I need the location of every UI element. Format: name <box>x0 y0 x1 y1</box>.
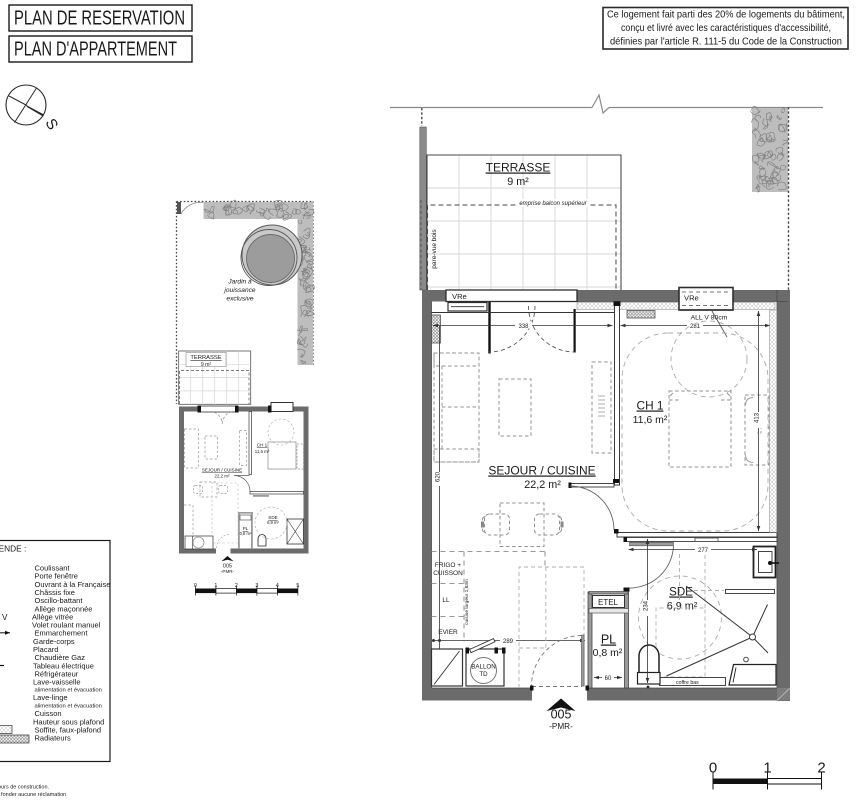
svg-text:FRIGO +: FRIGO + <box>435 562 461 569</box>
svg-text:TERRASSE: TERRASSE <box>486 161 551 175</box>
svg-text:PL: PL <box>601 633 616 647</box>
svg-text:-PMR-: -PMR- <box>221 569 235 574</box>
svg-text:jouissance: jouissance <box>223 287 255 294</box>
svg-text:SEJOUR / CUISINE: SEJOUR / CUISINE <box>488 464 595 478</box>
svg-text:VRe: VRe <box>452 292 467 301</box>
svg-text:281: 281 <box>690 324 701 330</box>
svg-text:CH 1: CH 1 <box>637 399 664 413</box>
svg-text:t fonder aucune réclamation: t fonder aucune réclamation <box>0 792 66 798</box>
svg-text:cuisine largeur 1,83m: cuisine largeur 1,83m <box>464 579 470 625</box>
svg-text:définies par l'article R. 111-: définies par l'article R. 111-5 du Code … <box>610 37 842 48</box>
svg-text:SEJOUR / CUISINE: SEJOUR / CUISINE <box>202 468 242 473</box>
svg-text:emprise balcon supérieur: emprise balcon supérieur <box>519 201 587 207</box>
svg-text:Ce logement fait parti des 20%: Ce logement fait parti des 20% de logeme… <box>607 10 845 21</box>
svg-text:6,9 m²: 6,9 m² <box>667 601 698 613</box>
svg-text:Jardin à: Jardin à <box>227 279 252 286</box>
svg-text:LL: LL <box>442 597 450 604</box>
svg-text:Radiateurs: Radiateurs <box>35 734 72 743</box>
svg-text:EVIER: EVIER <box>438 629 458 636</box>
svg-text:pare-vue bois: pare-vue bois <box>431 229 438 269</box>
svg-text:TD: TD <box>479 671 488 678</box>
svg-text:conçu et livré avec les caract: conçu et livré avec les caractéristiques… <box>621 23 831 34</box>
svg-text:11,6 m²: 11,6 m² <box>633 414 668 426</box>
svg-text:S: S <box>41 116 61 133</box>
svg-text:22,2 m²: 22,2 m² <box>524 479 561 491</box>
svg-text:413: 413 <box>755 412 761 423</box>
svg-text:0,8 m²: 0,8 m² <box>240 531 252 536</box>
svg-text:60: 60 <box>605 676 612 682</box>
svg-text:VRe: VRe <box>684 294 699 303</box>
svg-text:ETEL: ETEL <box>598 598 619 607</box>
svg-text:005: 005 <box>551 708 572 722</box>
svg-text:6,9 m²: 6,9 m² <box>267 520 279 525</box>
svg-text:Lave-linge: Lave-linge <box>33 693 68 702</box>
svg-text:PLAN DE RESERVATION: PLAN DE RESERVATION <box>14 8 185 30</box>
svg-text:PLAN D'APPARTEMENT: PLAN D'APPARTEMENT <box>14 39 177 61</box>
svg-text:Lave-vaisselle: Lave-vaisselle <box>33 678 81 687</box>
svg-text:ours de construction.: ours de construction. <box>0 785 50 791</box>
svg-text:277: 277 <box>698 548 709 554</box>
svg-text:-PMR-: -PMR- <box>549 722 573 731</box>
svg-text:exclusive: exclusive <box>226 296 253 303</box>
svg-text:620: 620 <box>436 471 442 482</box>
svg-text:BALLON: BALLON <box>471 664 495 671</box>
svg-text:TERRASSE: TERRASSE <box>190 355 221 361</box>
svg-text:9 m²: 9 m² <box>201 362 212 368</box>
svg-text:coffre bas: coffre bas <box>676 680 699 686</box>
svg-text:9 m²: 9 m² <box>507 176 529 188</box>
svg-text:338: 338 <box>518 324 529 330</box>
svg-text:11,6 m²: 11,6 m² <box>255 449 270 454</box>
svg-text:LEGENDE :: LEGENDE : <box>0 544 26 554</box>
svg-text:CH 1: CH 1 <box>257 443 268 448</box>
svg-text:289: 289 <box>503 639 514 645</box>
svg-text:22,2 m²: 22,2 m² <box>215 474 230 479</box>
svg-text:0,8 m²: 0,8 m² <box>593 647 623 659</box>
svg-text:V: V <box>2 613 8 622</box>
svg-text:234: 234 <box>644 600 650 611</box>
svg-text:CUISSON: CUISSON <box>433 570 463 577</box>
svg-text:ALL V 80cm: ALL V 80cm <box>691 315 728 322</box>
